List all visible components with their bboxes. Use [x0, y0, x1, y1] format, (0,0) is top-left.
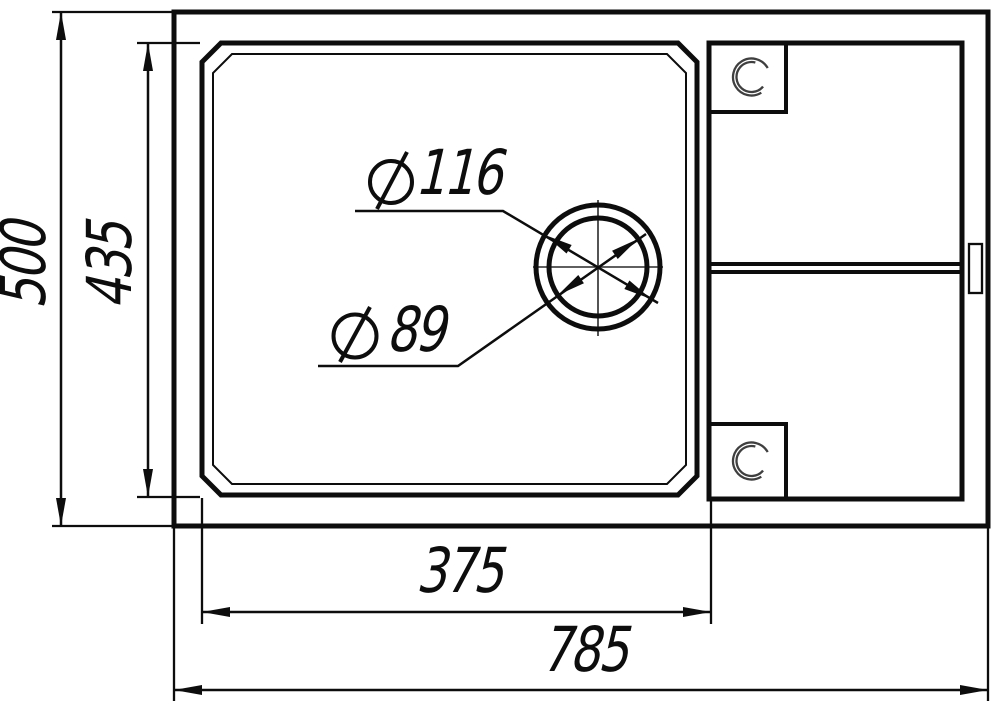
tap-hole-circle-top: [726, 52, 777, 103]
drainboard-divider: [709, 264, 962, 272]
tap-hole-circle-bottom: [726, 436, 777, 487]
diameter-leader-lines: [318, 211, 658, 366]
drain-inner-diameter-value: 89: [383, 299, 454, 361]
drain-outer-diameter-value: 116: [412, 142, 512, 204]
diameter-symbol-icon: [334, 307, 377, 362]
sink-bowl-outer: [202, 43, 697, 495]
bowl-width-label: 375: [408, 540, 517, 602]
overflow-slot: [969, 244, 982, 293]
drain-inner-diameter-label: 89: [383, 299, 456, 361]
arrowheads: [56, 12, 988, 695]
overall-width-label: 785: [533, 619, 642, 681]
overall-height-value: 500: [0, 212, 55, 312]
drain-outer-diameter-label: 116: [407, 142, 516, 204]
bowl-height-label: 435: [79, 207, 141, 316]
tap-hole-square-bottom: [709, 424, 786, 497]
bowl-height-value: 435: [79, 212, 141, 312]
overall-width-value: 785: [538, 619, 638, 681]
tap-hole-square-top: [709, 43, 786, 112]
outer-frame: [174, 12, 988, 526]
diameter-symbol-icon: [370, 152, 412, 209]
overall-height-label: 500: [0, 207, 55, 316]
sink-technical-drawing: 500 435 116 89 375 785: [0, 0, 1000, 704]
bowl-width-value: 375: [413, 540, 513, 602]
extension-lines: [52, 12, 988, 701]
sink-bowl-inner-rim: [213, 54, 686, 484]
